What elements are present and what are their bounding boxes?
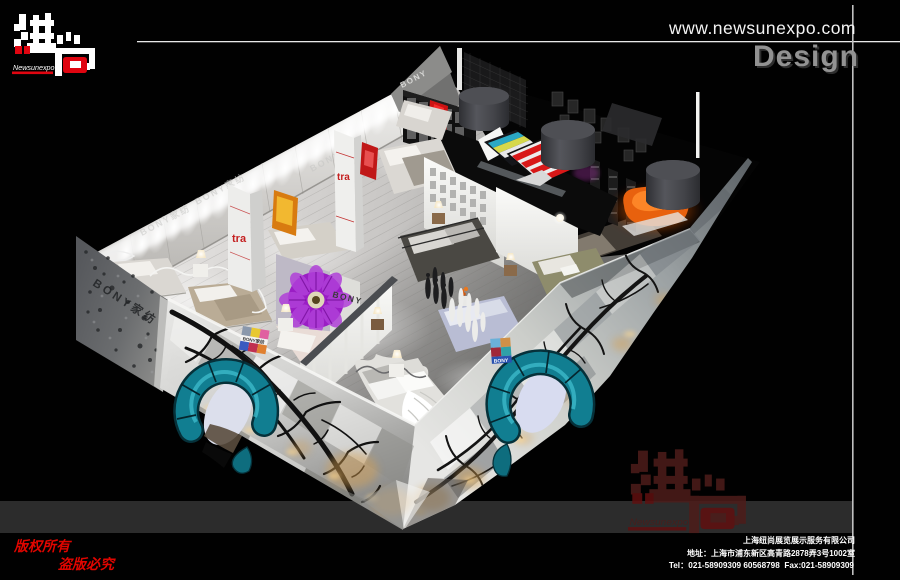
svg-text:版权所有: 版权所有 <box>13 538 72 554</box>
svg-text:tra: tra <box>232 233 247 245</box>
svg-text:地址：上海市浦东新区高青路2878弄3号1002室: 地址：上海市浦东新区高青路2878弄3号1002室 <box>687 548 855 558</box>
svg-text:上海纽尚展览展示服务有限公司: 上海纽尚展览展示服务有限公司 <box>743 535 855 545</box>
svg-text:Design: Design <box>753 40 859 73</box>
svg-text:Tel：021-58909309 60568798 Fax: Tel：021-58909309 60568798 Fax:021-589093… <box>669 561 855 570</box>
svg-text:BONY: BONY <box>494 358 509 365</box>
svg-text:tra: tra <box>337 172 350 183</box>
svg-text:www.newsunexpo.com: www.newsunexpo.com <box>668 18 856 38</box>
svg-text:盗版必究: 盗版必究 <box>58 556 116 572</box>
